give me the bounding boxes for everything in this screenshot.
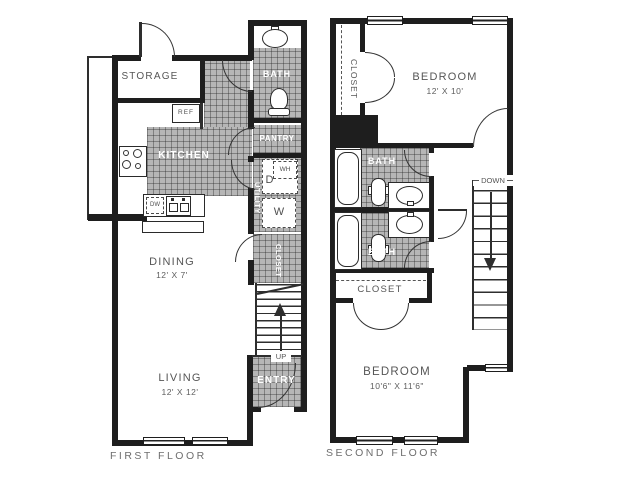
storage-label: STORAGE bbox=[112, 71, 188, 82]
dishwasher-label: DW bbox=[146, 202, 164, 208]
living-label: LIVING bbox=[146, 372, 214, 384]
window bbox=[485, 364, 508, 372]
toilet-bowl bbox=[270, 88, 288, 110]
toilet-bowl bbox=[371, 178, 386, 206]
wall bbox=[378, 143, 473, 148]
stove-burner bbox=[122, 160, 131, 169]
sink-basin bbox=[169, 203, 178, 212]
closet-label: CLOSET bbox=[271, 239, 283, 283]
toilet-base bbox=[268, 108, 290, 116]
stove-burner bbox=[123, 150, 129, 156]
living-dims: 12' X 12' bbox=[146, 387, 214, 397]
closet-door-swing bbox=[365, 78, 395, 103]
washer-label: W bbox=[262, 206, 296, 218]
dryer-label: D bbox=[263, 174, 276, 186]
wall bbox=[87, 57, 89, 220]
window bbox=[472, 16, 508, 25]
bar-counter bbox=[142, 221, 204, 233]
wall bbox=[409, 298, 430, 303]
entry-label: ENTRY bbox=[252, 375, 301, 386]
wall bbox=[463, 367, 469, 443]
wall bbox=[248, 260, 254, 285]
floor-plan-canvas: REF DW WH D W UP STORAGE KITCHEN B bbox=[0, 0, 640, 480]
window bbox=[356, 436, 393, 445]
window bbox=[404, 436, 438, 445]
sink-knob bbox=[171, 198, 174, 201]
window bbox=[367, 16, 403, 25]
bath-top-label: BATH bbox=[362, 156, 402, 166]
bathtub bbox=[337, 152, 359, 205]
utility-label: UTILITY bbox=[250, 176, 262, 220]
bath-sink bbox=[262, 29, 288, 48]
wall bbox=[301, 20, 307, 412]
down-arrow-head bbox=[484, 258, 496, 271]
wall bbox=[248, 20, 254, 60]
up-arrow-shaft bbox=[280, 314, 282, 352]
wall bbox=[112, 55, 141, 61]
up-label: UP bbox=[271, 351, 291, 362]
wall bbox=[253, 153, 307, 158]
wall bbox=[330, 298, 353, 303]
bathtub bbox=[337, 215, 359, 267]
bedroom-top-dims: 12' X 10' bbox=[405, 86, 485, 96]
closet-door-swing bbox=[365, 52, 395, 77]
bath-bottom-label: BATH bbox=[362, 247, 402, 257]
faucet-icon bbox=[407, 212, 414, 217]
bath-label: BATH bbox=[253, 69, 301, 79]
bedroom-bottom-dims: 10'6" X 11'6" bbox=[355, 381, 439, 391]
closet-rod bbox=[341, 25, 342, 115]
closet-door-swing bbox=[353, 303, 381, 330]
down-arrow-shaft bbox=[490, 192, 492, 262]
stove-burner bbox=[135, 163, 141, 169]
wall bbox=[248, 118, 307, 123]
dining-label: DINING bbox=[138, 256, 206, 268]
bedroom-bottom-label: BEDROOM bbox=[355, 366, 439, 379]
hall-door-swing bbox=[438, 211, 467, 239]
down-label: DOWN bbox=[473, 175, 513, 186]
second-floor-caption: SECOND FLOOR bbox=[326, 447, 440, 459]
sink-basin-oval bbox=[396, 215, 423, 234]
closet-top-label: CLOSET bbox=[343, 52, 358, 106]
wall bbox=[330, 437, 469, 443]
sink-basin bbox=[180, 203, 189, 212]
wall bbox=[200, 103, 203, 129]
dash-line bbox=[473, 180, 479, 181]
pantry-label: PANTRY bbox=[253, 134, 301, 143]
closet-rod bbox=[336, 280, 426, 281]
bedroom-door-swing bbox=[473, 108, 508, 147]
wall bbox=[200, 57, 205, 103]
back-door-swing bbox=[142, 23, 175, 57]
kitchen-bar-wall bbox=[88, 214, 147, 221]
staircase-up bbox=[257, 284, 301, 354]
down-label-text: DOWN bbox=[481, 175, 505, 186]
stove-burner bbox=[133, 149, 142, 158]
window bbox=[192, 437, 228, 445]
wall bbox=[360, 23, 365, 52]
kitchen-label: KITCHEN bbox=[156, 150, 212, 161]
wall bbox=[294, 407, 307, 412]
sink-knob bbox=[182, 198, 185, 201]
up-arrow-head bbox=[274, 303, 286, 316]
wall bbox=[112, 55, 118, 445]
chase-solid bbox=[330, 115, 378, 148]
wall bbox=[507, 18, 513, 372]
faucet-icon bbox=[407, 201, 414, 206]
first-floor-caption: FIRST FLOOR bbox=[110, 450, 207, 462]
refrigerator-label: REF bbox=[172, 109, 200, 116]
dash-line bbox=[507, 180, 513, 181]
wall bbox=[87, 56, 113, 58]
water-heater-label: WH bbox=[273, 166, 297, 173]
closet-door-swing bbox=[235, 234, 262, 262]
wall bbox=[112, 98, 205, 103]
closet-door-swing bbox=[381, 303, 409, 330]
bedroom-top-label: BEDROOM bbox=[405, 71, 485, 83]
window bbox=[143, 437, 185, 445]
dining-dims: 12' X 7' bbox=[138, 270, 206, 280]
closet-bottom-label: CLOSET bbox=[353, 285, 407, 295]
